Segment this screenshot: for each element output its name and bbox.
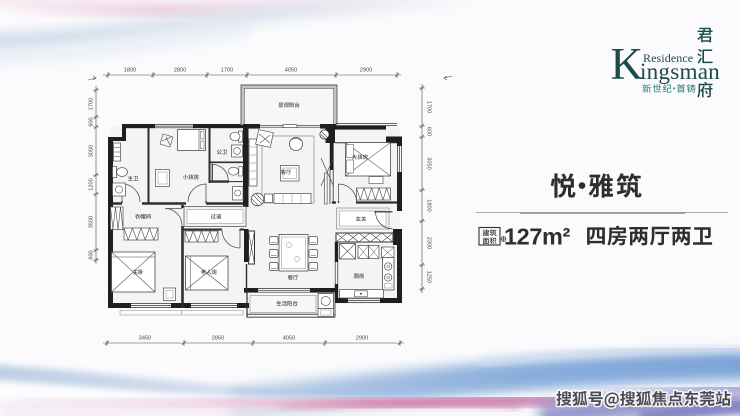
svg-text:1800: 1800 [124,68,136,74]
svg-text:2900: 2900 [356,336,368,342]
svg-text:600: 600 [426,127,432,136]
svg-text:1700: 1700 [426,101,432,113]
svg-text:2850: 2850 [212,336,224,342]
svg-text:1800: 1800 [426,199,432,211]
svg-text:600: 600 [89,250,95,259]
svg-text:1200: 1200 [89,178,95,190]
svg-text:4050: 4050 [283,336,295,342]
svg-text:3050: 3050 [89,145,95,157]
svg-text:1700: 1700 [89,98,95,110]
svg-text:3450: 3450 [139,336,151,342]
svg-text:4050: 4050 [285,68,297,74]
svg-text:127m²: 127m² [504,224,571,250]
svg-text:K: K [611,39,644,89]
svg-text:2300: 2300 [426,237,432,249]
svg-text:1700: 1700 [221,68,233,74]
svg-text:3500: 3500 [89,216,95,228]
svg-text:3050: 3050 [426,157,432,169]
svg-text:600: 600 [89,117,95,126]
svg-text:2900: 2900 [360,68,372,74]
svg-text:Residence: Residence [643,51,693,65]
svg-text:2800: 2800 [174,68,186,74]
svg-text:1250: 1250 [426,271,432,283]
